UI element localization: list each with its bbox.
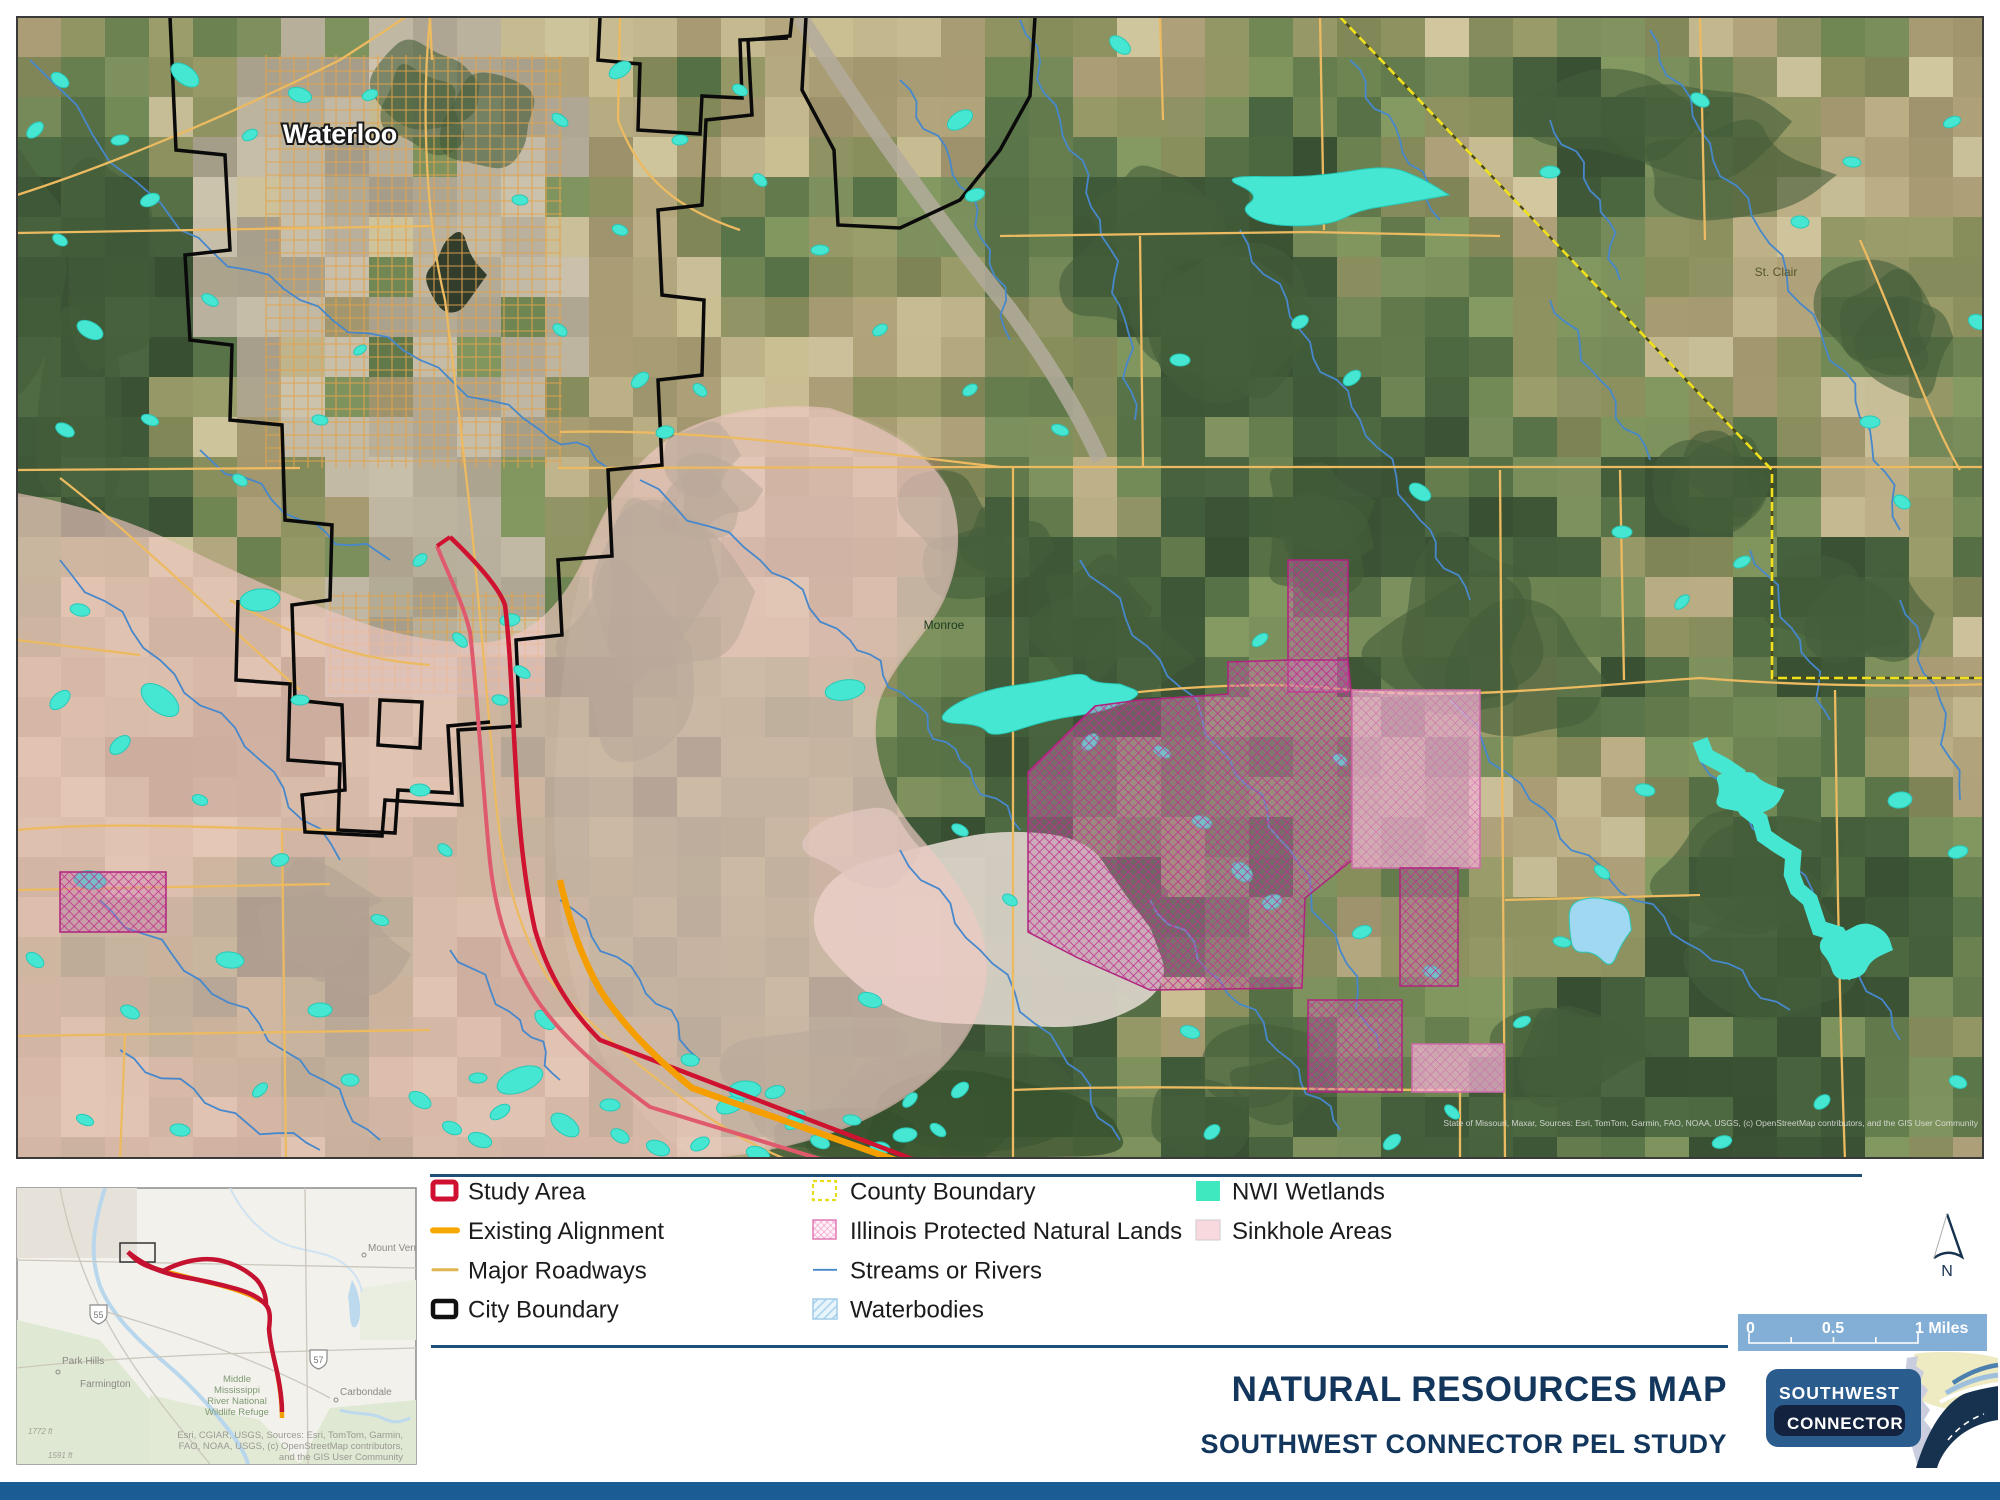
- svg-text:State of Missouri, Maxar, Sour: State of Missouri, Maxar, Sources: Esri,…: [1443, 1118, 1978, 1128]
- svg-text:SOUTHWEST: SOUTHWEST: [1779, 1383, 1900, 1403]
- svg-text:County Boundary: County Boundary: [850, 1179, 1035, 1206]
- svg-text:Mississippi: Mississippi: [214, 1385, 260, 1396]
- svg-text:Waterbodies: Waterbodies: [850, 1297, 984, 1324]
- svg-text:1772 ft: 1772 ft: [28, 1427, 53, 1436]
- svg-text:SOUTHWEST CONNECTOR PEL STUDY: SOUTHWEST CONNECTOR PEL STUDY: [1200, 1429, 1727, 1459]
- svg-text:0.5: 0.5: [1822, 1320, 1844, 1337]
- svg-text:Middle: Middle: [223, 1374, 251, 1385]
- svg-text:City Boundary: City Boundary: [468, 1297, 619, 1324]
- svg-text:CONNECTOR: CONNECTOR: [1787, 1414, 1903, 1433]
- svg-text:0: 0: [1746, 1320, 1755, 1337]
- svg-text:FAO, NOAA, USGS, (c) OpenStree: FAO, NOAA, USGS, (c) OpenStreetMap contr…: [179, 1441, 403, 1452]
- svg-text:55: 55: [93, 1310, 103, 1320]
- svg-text:57: 57: [313, 1355, 323, 1365]
- svg-text:River National: River National: [207, 1396, 267, 1407]
- svg-text:Major Roadways: Major Roadways: [468, 1257, 647, 1284]
- svg-text:Sinkhole Areas: Sinkhole Areas: [1232, 1218, 1392, 1245]
- svg-text:Farmington: Farmington: [80, 1379, 131, 1390]
- svg-text:Esri, CGIAR, USGS, Sources: Es: Esri, CGIAR, USGS, Sources: Esri, TomTom…: [177, 1430, 403, 1441]
- svg-text:and the GIS User Community: and the GIS User Community: [279, 1452, 403, 1463]
- svg-text:Study Area: Study Area: [468, 1179, 586, 1206]
- svg-text:1591 ft: 1591 ft: [48, 1451, 73, 1460]
- svg-text:Mount Vern: Mount Vern: [368, 1243, 419, 1254]
- svg-text:Park Hills: Park Hills: [62, 1356, 104, 1367]
- svg-text:N: N: [1941, 1263, 1953, 1280]
- svg-text:NWI Wetlands: NWI Wetlands: [1232, 1179, 1385, 1206]
- svg-text:Illinois Protected Natural Lan: Illinois Protected Natural Lands: [850, 1218, 1182, 1245]
- svg-text:Streams or Rivers: Streams or Rivers: [850, 1257, 1042, 1284]
- svg-text:St. Clair: St. Clair: [1755, 265, 1798, 279]
- svg-text:Carbondale: Carbondale: [340, 1387, 392, 1398]
- svg-text:1 Miles: 1 Miles: [1915, 1320, 1968, 1337]
- svg-text:NATURAL RESOURCES MAP: NATURAL RESOURCES MAP: [1232, 1370, 1727, 1409]
- svg-text:Existing Alignment: Existing Alignment: [468, 1218, 664, 1245]
- svg-text:Waterloo: Waterloo: [283, 119, 398, 149]
- svg-text:Wildlife Refuge: Wildlife Refuge: [205, 1407, 269, 1418]
- svg-text:Monroe: Monroe: [924, 618, 965, 632]
